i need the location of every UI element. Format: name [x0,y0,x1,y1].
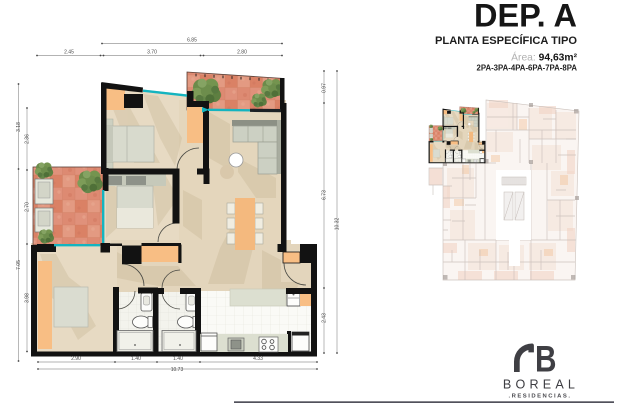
svg-text:1.40: 1.40 [173,356,183,362]
svg-text:DEP. A: DEP. A [474,0,577,34]
svg-text:PLANTA ESPECÍFICA TIPO: PLANTA ESPECÍFICA TIPO [435,34,577,47]
svg-text:2.36: 2.36 [25,134,31,144]
svg-text:6.73: 6.73 [322,190,328,200]
svg-text:10.73: 10.73 [171,367,184,373]
svg-text:7.05: 7.05 [16,260,22,270]
svg-text:2PA-3PA-4PA-6PA-7PA-8PA: 2PA-3PA-4PA-6PA-7PA-8PA [476,64,577,73]
svg-text:3.98: 3.98 [25,293,31,303]
svg-text:6.85: 6.85 [187,38,197,44]
svg-text:BOREAL: BOREAL [503,378,579,392]
svg-text:3.18: 3.18 [16,122,22,132]
svg-text:.RESIDENCIAS.: .RESIDENCIAS. [508,393,571,399]
svg-text:1.40: 1.40 [131,356,141,362]
svg-text:3.70: 3.70 [147,50,157,56]
svg-text:2.80: 2.80 [237,50,247,56]
svg-text:Área: 94,63m²: Área: 94,63m² [511,51,577,64]
svg-text:10.32: 10.32 [335,218,341,231]
svg-text:4.33: 4.33 [253,356,263,362]
svg-text:2.70: 2.70 [25,202,31,212]
svg-text:B: B [535,339,557,380]
svg-text:2.45: 2.45 [64,50,74,56]
svg-text:0.97: 0.97 [322,83,328,93]
svg-text:2.43: 2.43 [322,313,328,323]
svg-text:2.90: 2.90 [71,356,81,362]
